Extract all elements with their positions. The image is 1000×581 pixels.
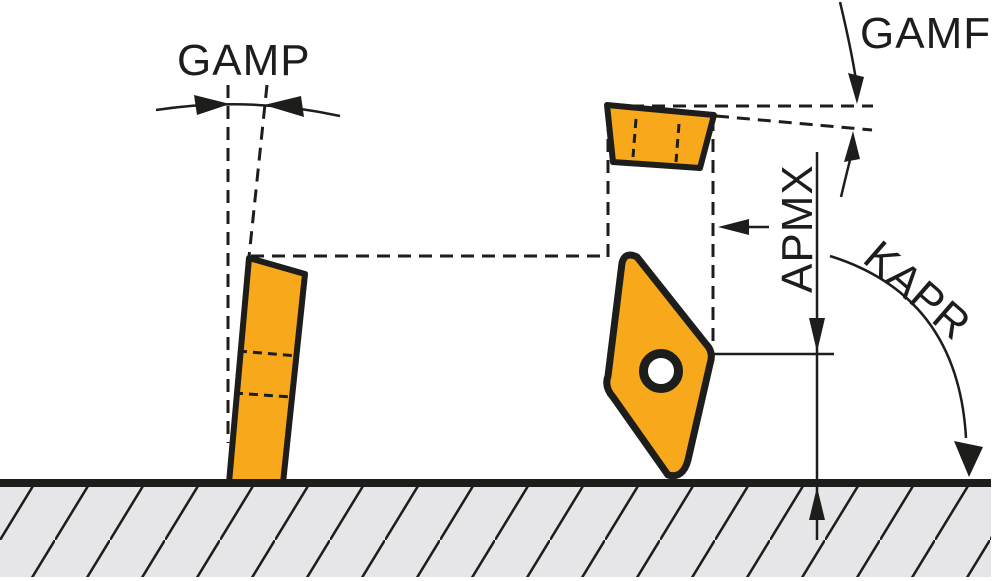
edge-pointer-arrow-icon — [718, 219, 749, 235]
apmx-arrow-down-icon — [809, 318, 825, 352]
gamf-angle-arc-upper — [840, 2, 856, 80]
gamf-angle-arc-lower — [841, 160, 850, 197]
kapr-label: KAPR — [854, 232, 980, 350]
kapr-arrow-icon — [954, 441, 983, 477]
top-view-insert — [607, 105, 714, 168]
side-view-insert — [229, 258, 305, 483]
tool-angle-diagram: GAMP GAMF APMX KAPR — [0, 0, 1000, 581]
gamf-arrow-up-icon — [844, 131, 860, 162]
gamf-arrow-down-icon — [848, 73, 864, 104]
gamp-arrow-right-icon — [194, 95, 230, 115]
diagram-canvas: GAMP GAMF APMX KAPR — [0, 0, 1000, 581]
gamp-arrow-left-icon — [264, 96, 304, 117]
gamp-insert-axis-line — [249, 85, 267, 257]
insert-mounting-hole — [644, 354, 679, 389]
gamf-insert-edge-line — [716, 116, 872, 130]
workpiece-hatch-area — [0, 487, 991, 577]
apmx-label: APMX — [773, 164, 822, 293]
gamp-label: GAMP — [177, 36, 311, 85]
gamp-angle-arc — [156, 104, 340, 116]
gamf-label: GAMF — [860, 9, 991, 58]
